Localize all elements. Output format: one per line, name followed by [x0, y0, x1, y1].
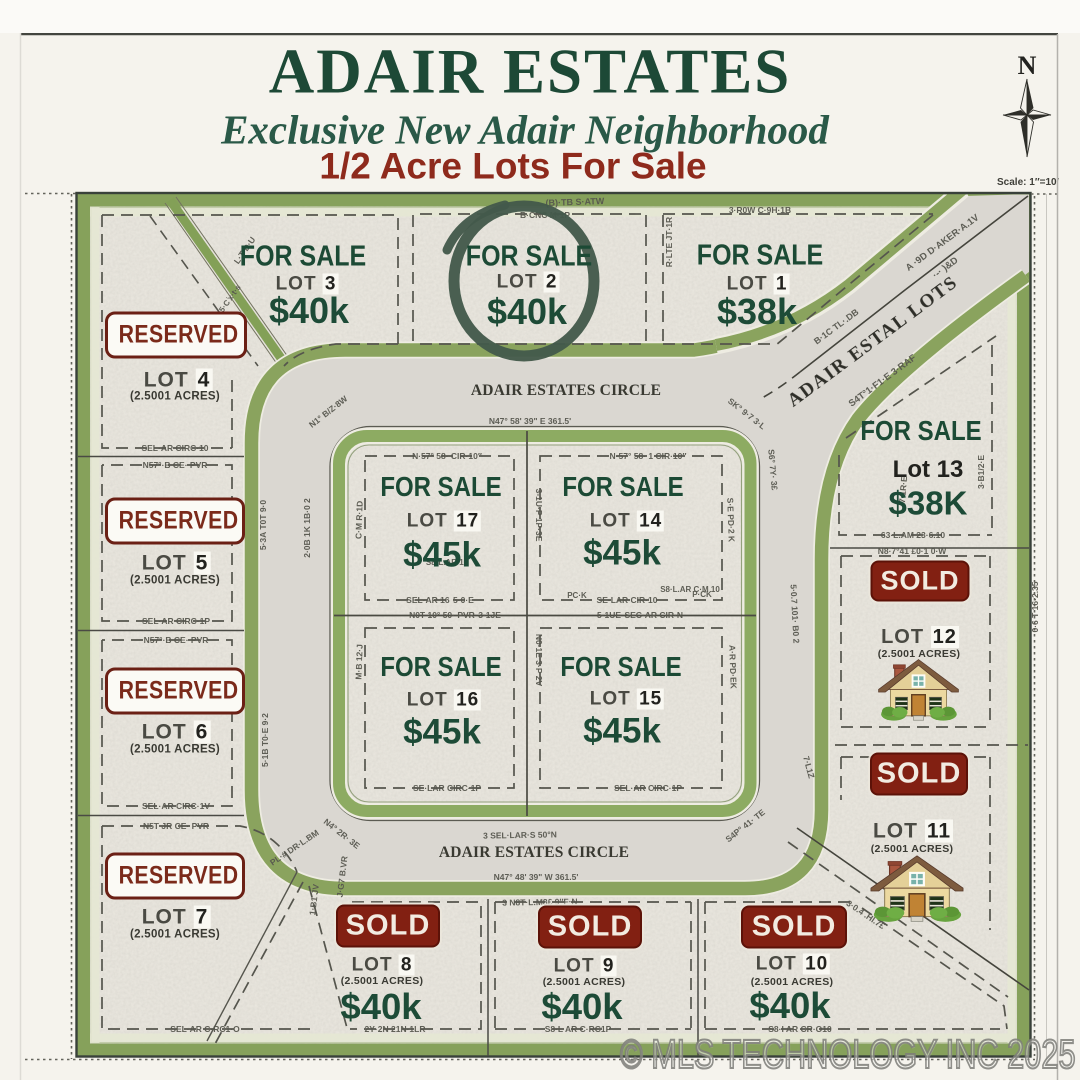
svg-text:N47° 58' 39" E 361.5': N47° 58' 39" E 361.5': [489, 416, 571, 426]
svg-text:SE·LAR CIRC·1P: SE·LAR CIRC·1P: [413, 783, 481, 793]
svg-text:(B)·TB S·ATW: (B)·TB S·ATW: [545, 196, 605, 208]
svg-text:PC·K: PC·K: [567, 591, 587, 600]
svg-text:0·6 T 16·2.35: 0·6 T 16·2.35: [1030, 581, 1040, 632]
svg-text:5·1UE SEC·AR CIR·N: 5·1UE SEC·AR CIR·N: [597, 610, 683, 620]
svg-text:M·B 12·J: M·B 12·J: [353, 644, 364, 680]
svg-text:Scale: 1″=10′: Scale: 1″=10′: [997, 177, 1060, 188]
svg-text:5·3A T0T 9·0: 5·3A T0T 9·0: [258, 500, 268, 551]
svg-text:N·57° 58· CIR·10″: N·57° 58· CIR·10″: [412, 451, 482, 461]
svg-text:SEL·AR CIRC·1P: SEL·AR CIRC·1P: [142, 616, 210, 626]
svg-text:3-1U·P 1P·3E: 3-1U·P 1P·3E: [534, 489, 544, 542]
svg-text:N0T 10° 50· PVR 3·1JE: N0T 10° 50· PVR 3·1JE: [409, 610, 501, 620]
svg-text:N: N: [1018, 51, 1037, 80]
svg-text:3·R0W C·9H·1B: 3·R0W C·9H·1B: [729, 205, 791, 215]
svg-text:ADAIR ESTATES CIRCLE: ADAIR ESTATES CIRCLE: [439, 844, 629, 861]
svg-text:C·M R·1D: C·M R·1D: [353, 501, 364, 540]
svg-text:63·L.AM 23·6.10: 63·L.AM 23·6.10: [881, 530, 946, 540]
svg-text:S·E PD·2 K: S·E PD·2 K: [725, 498, 737, 544]
svg-text:5·1B T0·E 9·2: 5·1B T0·E 9·2: [260, 713, 270, 767]
svg-text:N47° 48' 39" W 361.5': N47° 48' 39" W 361.5': [494, 872, 579, 882]
svg-text:3 SEL·LAR·S 50°N: 3 SEL·LAR·S 50°N: [483, 829, 557, 840]
svg-text:3·B1/2·E: 3·B1/2·E: [976, 455, 986, 489]
svg-text:N5T JR CE· PVR: N5T JR CE· PVR: [143, 821, 209, 831]
svg-text:SE·LAR CIR·10: SE·LAR CIR·10: [597, 595, 658, 605]
svg-text:ADAIR ESTATES CIRCLE: ADAIR ESTATES CIRCLE: [471, 382, 661, 399]
svg-text:R·LTE JT·1R: R·LTE JT·1R: [664, 217, 674, 267]
svg-text:SEL·AR 16 5·0·E: SEL·AR 16 5·0·E: [406, 595, 474, 605]
svg-text:N0·1E 3·P 2V: N0·1E 3·P 2V: [534, 634, 544, 687]
svg-text:SEL·AR CIRC·10: SEL·AR CIRC·10: [141, 443, 208, 453]
svg-text:S8·L.AR C·M 10: S8·L.AR C·M 10: [660, 585, 720, 594]
svg-text:SEL·AR CIRC·1V: SEL·AR CIRC·1V: [142, 801, 210, 811]
svg-text:A·R PD·EK: A·R PD·EK: [727, 645, 739, 690]
svg-text:N57°·B CE· PVR: N57°·B CE· PVR: [143, 460, 208, 470]
svg-text:N57°·B CE· PVR: N57°·B CE· PVR: [144, 635, 209, 645]
svg-text:N8·7°41 £0·1 0·W: N8·7°41 £0·1 0·W: [878, 546, 948, 556]
svg-text:2·0B 1K 1B·0 2: 2·0B 1K 1B·0 2: [302, 498, 312, 558]
svg-text:SEL·AR C·RC1·O: SEL·AR C·RC1·O: [170, 1024, 240, 1034]
svg-text:SEL·AR CIRC·1P: SEL·AR CIRC·1P: [614, 783, 682, 793]
svg-text:N·57° 58· 1 CIR·10″: N·57° 58· 1 CIR·10″: [610, 451, 687, 461]
